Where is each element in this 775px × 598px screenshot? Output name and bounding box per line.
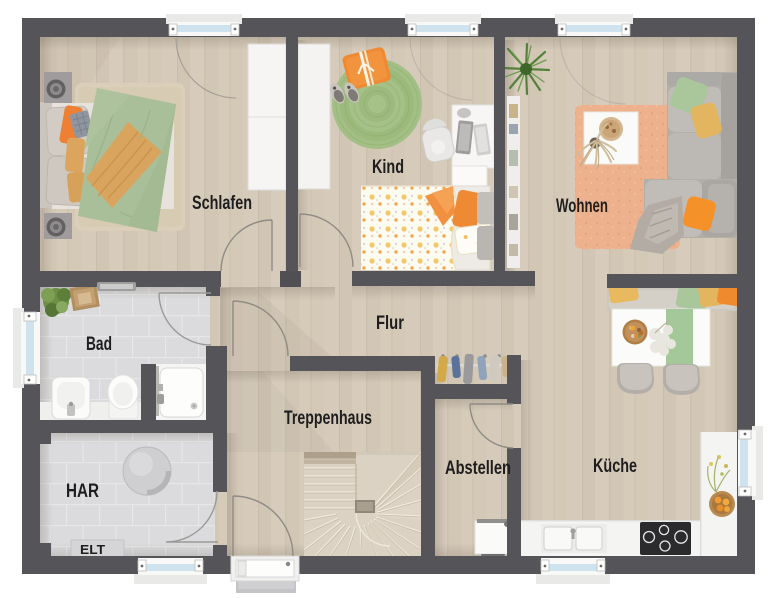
svg-text:Abstellen: Abstellen xyxy=(445,458,511,479)
svg-text:Küche: Küche xyxy=(593,456,637,477)
svg-text:HAR: HAR xyxy=(66,481,99,502)
svg-text:Bad: Bad xyxy=(86,334,112,355)
svg-text:ELT: ELT xyxy=(80,542,105,557)
svg-text:Treppenhaus: Treppenhaus xyxy=(284,408,372,429)
svg-text:Schlafen: Schlafen xyxy=(192,193,252,214)
svg-text:Kind: Kind xyxy=(372,157,404,178)
svg-text:Wohnen: Wohnen xyxy=(556,196,608,217)
svg-text:Flur: Flur xyxy=(376,313,404,334)
